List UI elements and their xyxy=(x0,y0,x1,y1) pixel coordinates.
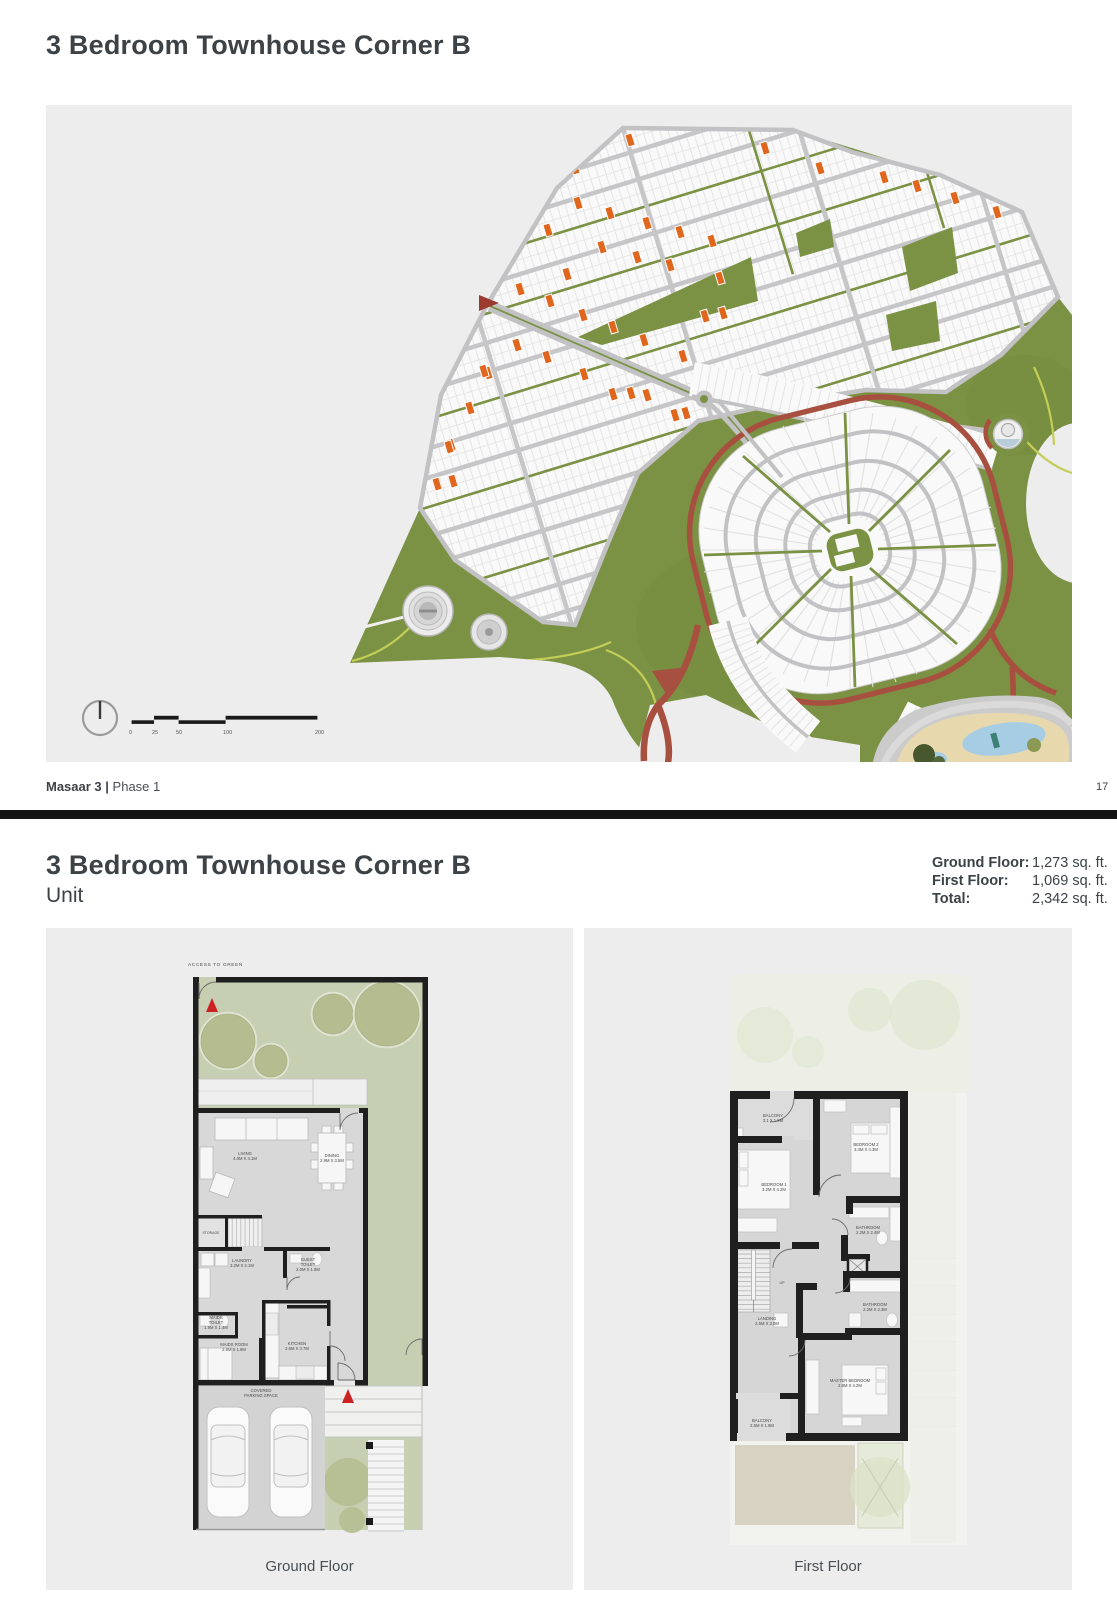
svg-text:4.0M X 4.1M: 4.0M X 4.1M xyxy=(233,1156,257,1161)
svg-text:0: 0 xyxy=(129,730,132,736)
svg-text:100: 100 xyxy=(223,730,232,736)
svg-text:2.5M X 3.0M: 2.5M X 3.0M xyxy=(755,1321,779,1326)
svg-text:2.2M X 2.4M: 2.2M X 2.4M xyxy=(856,1230,880,1235)
svg-text:50: 50 xyxy=(176,730,182,736)
svg-text:3.9M X 4.2M: 3.9M X 4.2M xyxy=(838,1383,862,1388)
svg-text:3.2M X 2.1M: 3.2M X 2.1M xyxy=(230,1263,254,1268)
svg-text:1.9M X 1.4M: 1.9M X 1.4M xyxy=(204,1325,228,1330)
svg-text:3.4M X 4.3M: 3.4M X 4.3M xyxy=(854,1147,878,1152)
svg-text:2.6M X 3.7M: 2.6M X 3.7M xyxy=(285,1346,309,1351)
svg-text:2.2M X 2.3M: 2.2M X 2.3M xyxy=(863,1307,887,1312)
svg-text:2.5M X 1.9M: 2.5M X 1.9M xyxy=(750,1423,774,1428)
svg-text:3.1 X 1.9M: 3.1 X 1.9M xyxy=(763,1118,784,1123)
svg-text:ACCESS TO GREEN: ACCESS TO GREEN xyxy=(188,962,243,968)
svg-text:200: 200 xyxy=(315,730,324,736)
svg-text:2.9M X 3.5M: 2.9M X 3.5M xyxy=(320,1158,344,1163)
svg-text:2.0M X 1.8M: 2.0M X 1.8M xyxy=(296,1267,320,1272)
svg-text:UP: UP xyxy=(780,1281,786,1285)
svg-text:STORAGE: STORAGE xyxy=(202,1231,220,1235)
svg-text:PARKING SPACE: PARKING SPACE xyxy=(244,1393,278,1398)
svg-text:3.2M X 4.2M: 3.2M X 4.2M xyxy=(762,1187,786,1192)
svg-text:25: 25 xyxy=(152,730,158,736)
svg-text:2.6M X 1.6M: 2.6M X 1.6M xyxy=(222,1347,246,1352)
